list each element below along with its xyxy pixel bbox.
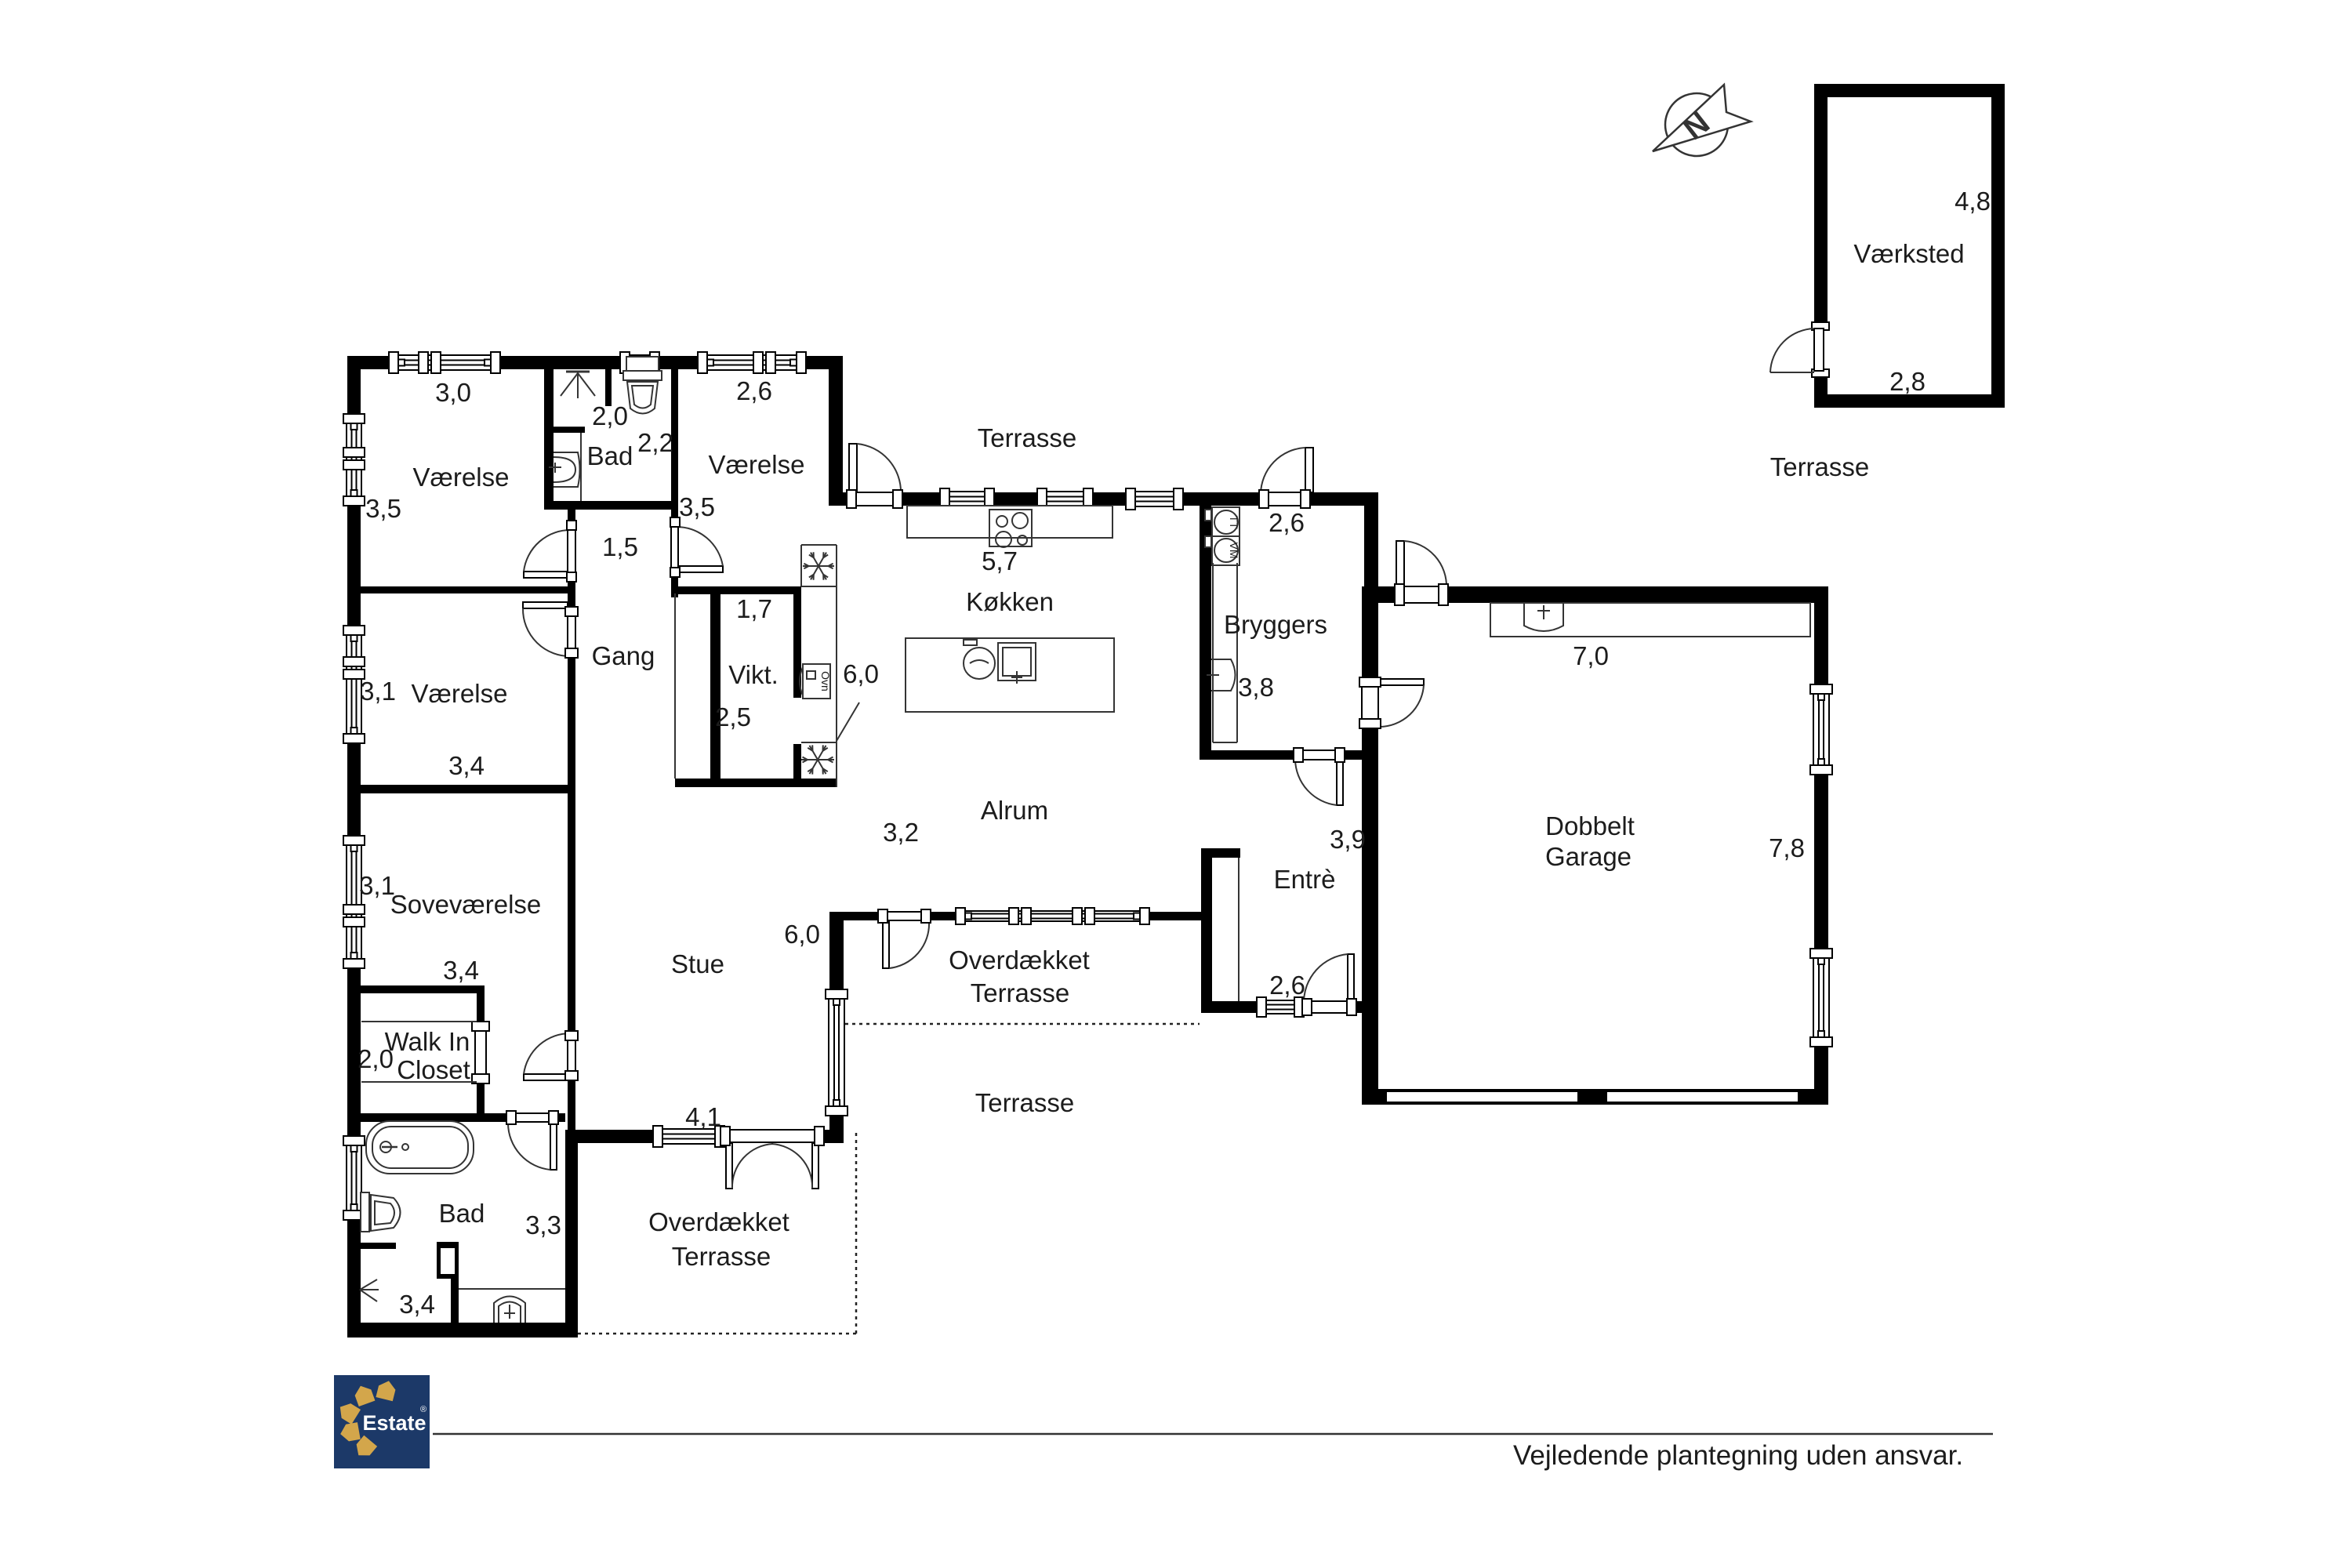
svg-text:2,6: 2,6 <box>736 376 772 405</box>
svg-text:Værelse: Værelse <box>413 463 510 492</box>
svg-text:Walk In: Walk In <box>385 1027 470 1056</box>
svg-text:®: ® <box>420 1405 426 1414</box>
svg-text:2,0: 2,0 <box>358 1044 394 1073</box>
svg-text:3,3: 3,3 <box>525 1210 561 1240</box>
svg-text:Vejledende plantegning uden an: Vejledende plantegning uden ansvar. <box>1513 1440 1963 1471</box>
svg-text:Vikt.: Vikt. <box>728 660 779 689</box>
svg-text:3,5: 3,5 <box>679 492 715 521</box>
svg-text:Closet: Closet <box>397 1055 470 1084</box>
svg-text:3,2: 3,2 <box>883 818 919 847</box>
svg-text:3,1: 3,1 <box>359 871 395 900</box>
svg-text:Terrasse: Terrasse <box>978 423 1077 452</box>
svg-text:TT: TT <box>1228 515 1240 529</box>
svg-text:Terrasse: Terrasse <box>1770 452 1870 481</box>
svg-text:Alrum: Alrum <box>981 796 1048 825</box>
svg-text:Stue: Stue <box>671 949 724 978</box>
svg-text:VM: VM <box>1228 543 1240 559</box>
svg-text:6,0: 6,0 <box>843 659 879 688</box>
svg-text:2,6: 2,6 <box>1269 971 1305 1000</box>
svg-text:Entrè: Entrè <box>1274 865 1336 894</box>
svg-text:2,2: 2,2 <box>637 428 673 457</box>
svg-text:3,9: 3,9 <box>1330 825 1366 854</box>
svg-text:3,1: 3,1 <box>360 677 396 706</box>
svg-text:3,4: 3,4 <box>443 956 479 985</box>
svg-text:Overdækket: Overdækket <box>949 946 1090 975</box>
svg-text:Gang: Gang <box>592 641 655 670</box>
svg-text:2,0: 2,0 <box>592 401 628 430</box>
svg-text:4,1: 4,1 <box>685 1102 721 1131</box>
svg-text:Overdækket: Overdækket <box>648 1207 789 1236</box>
svg-text:Køkken: Køkken <box>966 587 1054 616</box>
svg-text:Terrasse: Terrasse <box>975 1088 1075 1117</box>
svg-text:Terrasse: Terrasse <box>971 978 1070 1007</box>
svg-text:Bad: Bad <box>587 441 633 470</box>
svg-text:Estate: Estate <box>362 1411 426 1435</box>
svg-text:6,0: 6,0 <box>784 920 820 949</box>
svg-text:3,4: 3,4 <box>448 751 485 780</box>
svg-text:3,8: 3,8 <box>1238 673 1274 702</box>
svg-text:Værelse: Værelse <box>412 679 508 708</box>
svg-text:2,8: 2,8 <box>1889 367 1926 396</box>
svg-text:Garage: Garage <box>1545 842 1632 871</box>
svg-text:Bad: Bad <box>439 1199 485 1228</box>
svg-text:Soveværelse: Soveværelse <box>390 890 542 919</box>
svg-text:3,4: 3,4 <box>399 1290 435 1319</box>
svg-text:Dobbelt: Dobbelt <box>1545 811 1635 840</box>
svg-text:5,7: 5,7 <box>982 546 1018 575</box>
svg-text:7,0: 7,0 <box>1573 641 1609 670</box>
svg-text:4,8: 4,8 <box>1955 187 1991 216</box>
svg-text:7,8: 7,8 <box>1769 833 1805 862</box>
svg-text:Terrasse: Terrasse <box>672 1242 771 1271</box>
svg-text:1,7: 1,7 <box>736 594 772 623</box>
svg-text:2,6: 2,6 <box>1269 508 1305 537</box>
svg-text:2,5: 2,5 <box>715 702 751 731</box>
svg-text:3,5: 3,5 <box>365 494 401 523</box>
svg-text:Værelse: Værelse <box>709 450 805 479</box>
svg-text:Bryggers: Bryggers <box>1224 610 1327 639</box>
svg-text:Værksted: Værksted <box>1853 239 1964 268</box>
svg-text:1,5: 1,5 <box>602 532 638 561</box>
svg-text:Ovn: Ovn <box>819 671 832 691</box>
svg-text:3,0: 3,0 <box>435 378 471 407</box>
